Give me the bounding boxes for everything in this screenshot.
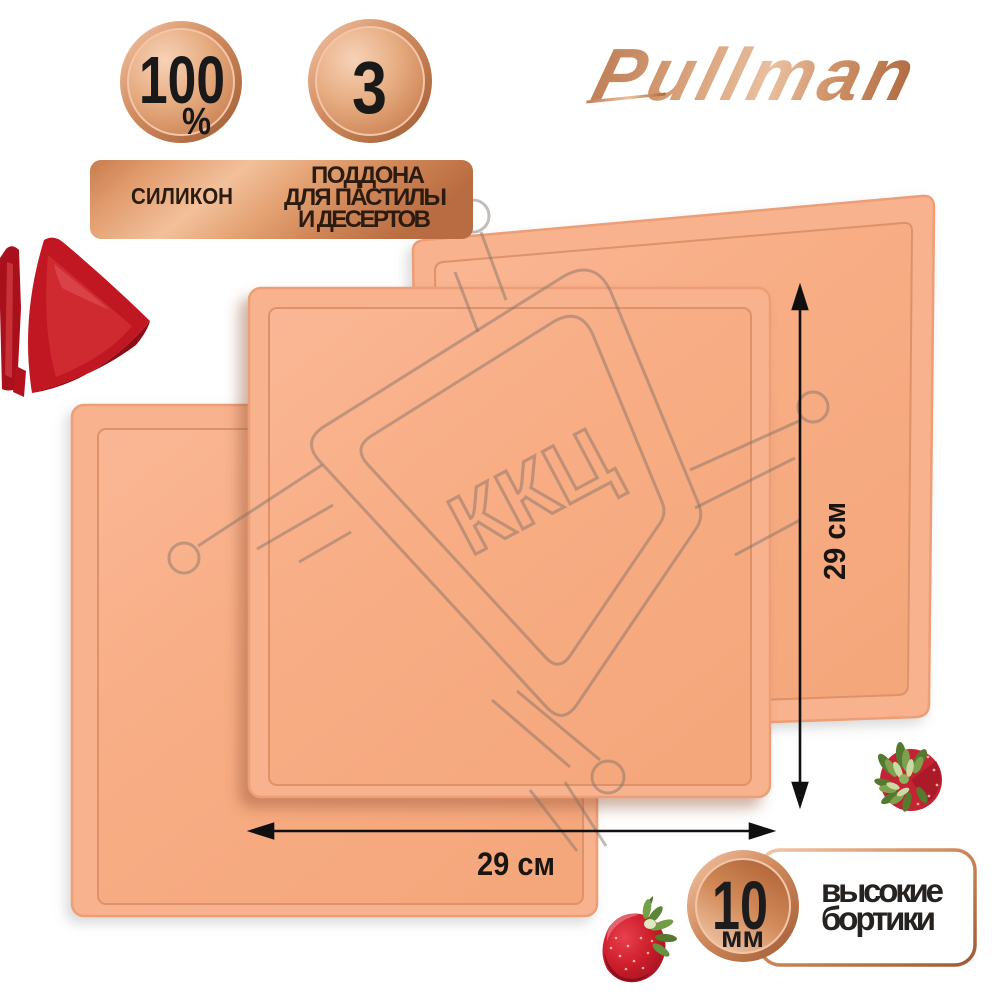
svg-text:Pullman: Pullman [585,33,927,116]
svg-text:29 см: 29 см [817,502,852,580]
svg-text:И ДЕСЕРТОВ: И ДЕСЕРТОВ [298,206,431,233]
svg-text:%: % [182,101,211,143]
svg-text:мм: мм [721,921,764,954]
svg-text:29 см: 29 см [477,846,555,882]
svg-text:СИЛИКОН: СИЛИКОН [131,183,233,209]
svg-text:бортики: бортики [821,900,936,937]
svg-text:3: 3 [352,46,387,129]
